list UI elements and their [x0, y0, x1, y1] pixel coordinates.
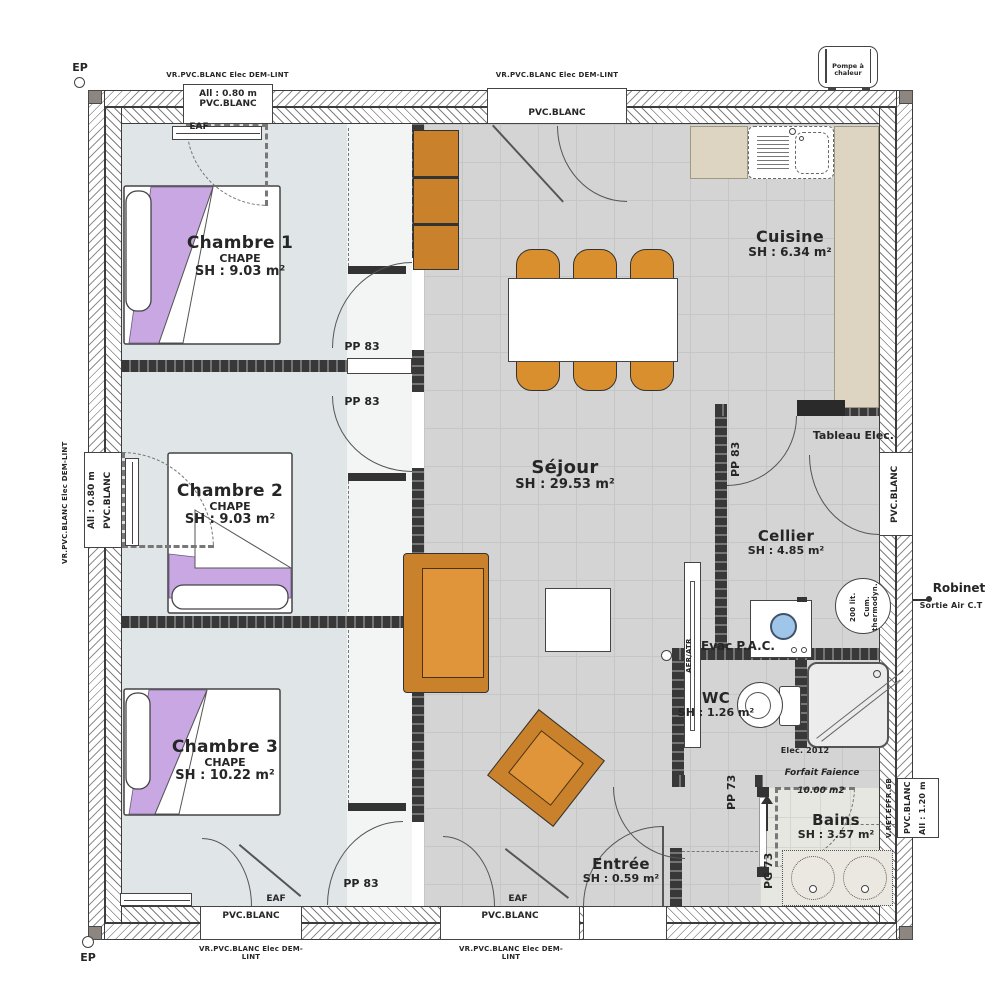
- closet-bar: [348, 473, 406, 481]
- water-heater: 200 lit. Cum. thermodyn.: [835, 578, 891, 634]
- dining-table: [508, 278, 678, 362]
- air-outlet-label: Sortie Air C.T: [916, 602, 986, 611]
- vent-label: AER/ATR: [686, 628, 698, 684]
- window-bains: PVC.BLANC All : 1.20 m: [897, 778, 939, 838]
- window-chambre3: PVC.BLANC: [200, 906, 302, 940]
- room-area: SH : 1.26 m²: [676, 707, 756, 719]
- window-material: PVC.BLANC: [904, 781, 916, 835]
- wall-ch2-ch3: [122, 616, 412, 628]
- electrical-panel: [797, 400, 845, 416]
- wall-corner: [88, 90, 102, 104]
- window-material: PVC.BLANC: [441, 911, 579, 921]
- room-area: SH : 0.59 m²: [576, 873, 666, 885]
- kitchen-sink: [748, 126, 834, 179]
- window-sill-height: All : 0.80 m: [184, 89, 272, 99]
- window-sejour-bottom: PVC.BLANC: [440, 906, 580, 940]
- room-name: Séjour: [490, 458, 640, 478]
- vanity-faucet: [809, 885, 817, 893]
- wall-wc-bottom: [672, 775, 685, 787]
- shower-tray: [807, 662, 889, 748]
- wall-wc-left: [672, 660, 684, 787]
- door-label-pp83: PP 83: [330, 396, 394, 408]
- room-area: SH : 9.03 m²: [150, 513, 310, 528]
- coffee-table: [545, 588, 611, 652]
- window-sejour-top: PVC.BLANC: [487, 88, 627, 124]
- room-name: Entrée: [576, 856, 666, 873]
- heat-pump-unit: Pompe à chaleur: [818, 46, 878, 88]
- window-fixed-note: V.RET.EFFR.GB: [886, 778, 896, 838]
- wardrobe: [413, 130, 459, 270]
- wall-pocket: [347, 358, 412, 374]
- sink-drainboard: [757, 134, 789, 172]
- radiator-chambre3: [120, 893, 192, 906]
- room-chambre3: Chambre 3 CHAPE SH : 10.22 m²: [145, 738, 305, 784]
- sofa: [403, 553, 489, 693]
- window-roller-note: VR.PVC.BLANC Elec DEM-LINT: [487, 72, 627, 80]
- window-material: PVC.BLANC: [103, 455, 117, 545]
- ep-marker-top: EP: [68, 62, 92, 74]
- vanity: [782, 850, 893, 906]
- entry-arrow: [766, 803, 768, 831]
- radiator-label-eaf: EAF: [184, 122, 214, 132]
- closet-dash: [348, 481, 350, 612]
- room-area: SH : 29.53 m²: [490, 478, 640, 493]
- window-roller-note: VR.PVC.BLANC Elec DEM-LINT: [62, 430, 74, 575]
- radiator-label-eaf: EAF: [260, 894, 292, 904]
- wall-corner: [899, 90, 913, 104]
- room-chambre1: Chambre 1 CHAPE SH : 9.03 m²: [160, 234, 320, 280]
- washer-knob: [791, 647, 797, 653]
- room-name: Cuisine: [730, 228, 850, 246]
- room-bains: Bains SH : 3.57 m²: [786, 812, 886, 841]
- room-cellier: Cellier SH : 4.85 m²: [736, 528, 836, 557]
- room-chambre2: Chambre 2 CHAPE SH : 9.03 m²: [150, 482, 310, 528]
- room-area: SH : 3.57 m²: [786, 829, 886, 841]
- floor-plan: PP 83 PP 83 PP 83 VR.PVC.BLANC Elec DEM-…: [0, 0, 1000, 1000]
- dining-chair: [630, 357, 674, 391]
- radiator-label-eaf: EAF: [502, 894, 534, 904]
- door-label-pp83: PP 83: [330, 341, 394, 353]
- wall-cellier-top: [715, 404, 727, 416]
- kitchen-counter-right: [834, 126, 879, 408]
- window-roller-note: VR.PVC.BLANC Elec DEM-LINT: [450, 946, 572, 962]
- room-wc: WC SH : 1.26 m²: [676, 690, 756, 719]
- closet-dash: [348, 630, 350, 803]
- window-sill-height: All : 1.20 m: [919, 781, 931, 835]
- wall-ch1-ch2: [122, 360, 347, 372]
- room-entree: Entrée SH : 0.59 m²: [576, 856, 666, 885]
- dining-chair: [573, 357, 617, 391]
- ep-circle-bottom: [82, 936, 94, 948]
- vanity-sink: [791, 856, 835, 900]
- window-sill-height: All : 0.80 m: [87, 455, 101, 545]
- window-roller-note: VR.PVC.BLANC Elec DEM-LINT: [190, 946, 312, 962]
- radiator-chambre2: [125, 458, 139, 546]
- front-door: [583, 906, 667, 940]
- room-name: Chambre 1: [160, 234, 320, 253]
- wall-corner: [899, 926, 913, 940]
- closet-bar: [348, 803, 406, 811]
- room-name: Cellier: [736, 528, 836, 545]
- window-chambre1: All : 0.80 m PVC.BLANC: [183, 84, 273, 124]
- ep-marker-bottom: EP: [76, 952, 100, 964]
- window-material: PVC.BLANC: [184, 99, 272, 109]
- shower-drain: [873, 670, 881, 678]
- room-name: Chambre 3: [145, 738, 305, 757]
- evac-point: [661, 650, 672, 661]
- wall-bedrooms-living: [412, 350, 424, 392]
- room-area: SH : 6.34 m²: [730, 246, 850, 259]
- tap-label: Robinet: [928, 582, 990, 595]
- door-label-pp73: PP 73: [726, 768, 742, 816]
- window-chambre2: All : 0.80 m PVC.BLANC: [84, 452, 122, 548]
- sink-faucet: [799, 136, 804, 141]
- room-area: SH : 10.22 m²: [145, 769, 305, 784]
- room-name: Bains: [786, 812, 886, 829]
- room-name: WC: [676, 690, 756, 707]
- washer-valve: [797, 597, 807, 602]
- dash-line: [682, 851, 758, 853]
- door-label-pp83: PP 83: [730, 436, 746, 482]
- elec-note: Elec. 2012: [770, 747, 840, 756]
- hall-closet-strip: [347, 124, 412, 906]
- window-material: PVC.BLANC: [201, 911, 301, 921]
- room-area: SH : 4.85 m²: [736, 545, 836, 557]
- closet-dash: [348, 128, 350, 266]
- ep-circle-top: [74, 77, 85, 88]
- room-sejour: Séjour SH : 29.53 m²: [490, 458, 640, 493]
- dining-chair: [516, 357, 560, 391]
- water-heater-capacity: 200 lit.: [850, 583, 860, 631]
- heat-pump-leg: [862, 87, 870, 91]
- room-area: SH : 9.03 m²: [160, 265, 320, 280]
- wall-cellier-left: [715, 416, 727, 660]
- room-cuisine: Cuisine SH : 6.34 m²: [730, 228, 850, 259]
- washer-door: [770, 613, 797, 640]
- washer-knob: [801, 647, 807, 653]
- door-cellier-exterior: PVC.BLANC: [879, 452, 913, 536]
- wall-wc-bottom: [755, 775, 763, 787]
- heat-pump-label: Pompe à chaleur: [826, 63, 870, 78]
- entry-arrow-head: [761, 795, 773, 804]
- door-label-pp83: PP 83: [332, 878, 390, 890]
- sink-faucet: [789, 128, 796, 135]
- window-material: PVC.BLANC: [488, 108, 626, 118]
- water-heater-type: Cum. thermodyn.: [864, 583, 874, 631]
- room-name: Chambre 2: [150, 482, 310, 501]
- heat-pump-leg: [828, 87, 836, 91]
- vanity-faucet: [861, 885, 869, 893]
- electrical-panel-label: Tableau Elec.: [808, 430, 894, 442]
- kitchen-counter: [690, 126, 748, 179]
- door-material: PVC.BLANC: [890, 455, 904, 533]
- window-roller-note: VR.PVC.BLANC Elec DEM-LINT: [150, 72, 305, 80]
- tiling-note-2: 10.00 m2: [786, 786, 856, 796]
- evac-pac-label: Evac P.A.C.: [686, 640, 790, 653]
- vanity-sink: [843, 856, 887, 900]
- tiling-note-1: Forfait Faience: [780, 768, 864, 778]
